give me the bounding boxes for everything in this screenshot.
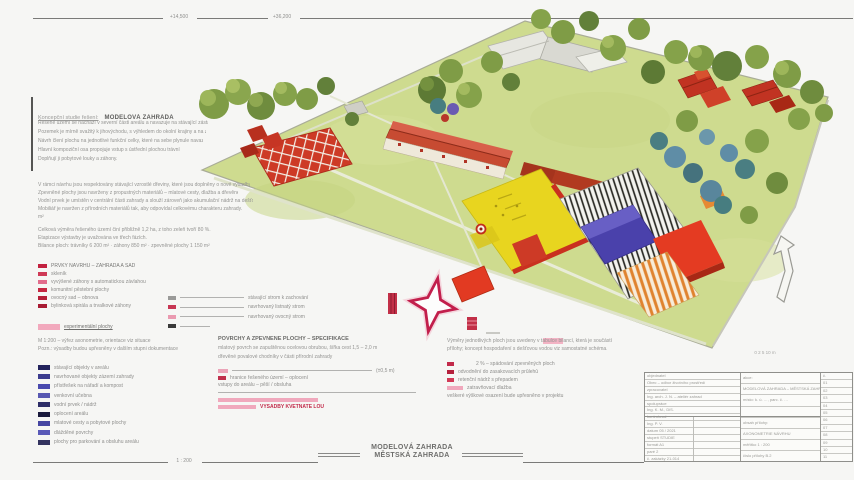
- legend-pink-row: experimentální plochy: [38, 322, 160, 332]
- text-line: Mobiliář je navržen z přírodních materiá…: [38, 205, 243, 213]
- legend-surfaces-lines: mlatový povrch se zapuštěnou ocelovou ob…: [218, 344, 420, 361]
- legend-swatch: [38, 402, 50, 407]
- legend-row: vstupy do areálu – pěší / obsluha: [218, 382, 420, 389]
- legend-label: experimentální plochy: [64, 324, 160, 330]
- titleblock-row: 05: [821, 410, 852, 417]
- legend-label: vodní prvek / nádrž: [54, 402, 142, 408]
- legend-swatch: [168, 324, 176, 328]
- legend-label: dlážděné povrchy: [54, 430, 132, 436]
- text-line: Doplňují ji pobytové louky a záhony.: [38, 155, 156, 164]
- text-line: Vodní prvek je umístěn v centrální části…: [38, 197, 253, 205]
- titleblock-sub-divider: [693, 417, 694, 461]
- text-line: Bilance ploch: trávníky 6 200 m² · záhon…: [38, 242, 253, 250]
- legend-label: přístřešek na nářadí a kompost: [54, 383, 204, 389]
- titleblock-row: spolupráce: [645, 401, 740, 408]
- legend-swatch: [38, 412, 50, 417]
- titleblock-row: 07: [821, 425, 852, 432]
- legend-row: retenční nádrž s přepadem: [447, 376, 612, 384]
- titleblock-major-rule: [645, 416, 820, 417]
- legend-swatch: [447, 386, 463, 390]
- leader-line: [218, 392, 416, 393]
- titleblock-row: AXONOMETRIE NÁVRHU: [741, 429, 820, 440]
- legend-swatch: [38, 421, 50, 426]
- legend-row: hranice řešeného území – oplocení: [218, 374, 420, 381]
- legend-label: navrhovaný ovocný strom: [248, 314, 348, 320]
- legend-swatch: [38, 288, 47, 292]
- titleblock-row: 06: [821, 417, 852, 424]
- titleblock-mid-column: akce:MODELOVÁ ZAHRADA – MĚSTSKÁ ZAHRADAm…: [741, 373, 820, 461]
- legend-notes-block: Výměry jednotlivých ploch jsou uvedeny v…: [447, 337, 612, 400]
- titleblock-row: 11: [821, 454, 852, 461]
- legend-row: experimentální plochy: [38, 322, 160, 332]
- legend-swatch: [218, 398, 318, 402]
- legend-row: přístřešek na nářadí a kompost: [38, 382, 204, 391]
- titleblock-row: 04: [821, 403, 852, 410]
- legend-row: [218, 396, 420, 403]
- legend-row: vyvýšené záhony s automatickou závlahou: [38, 278, 169, 286]
- legend-blue-group: stávající objekty v areálunavrhované obj…: [38, 363, 204, 447]
- titleblock-row: objednatel: [645, 373, 740, 380]
- legend-label: komunitní pěstební plochy: [51, 287, 143, 293]
- legend-row: dlážděné povrchy: [38, 428, 204, 437]
- legend-swatch: [38, 264, 47, 268]
- bottom-border-segment: [523, 462, 644, 463]
- titleblock-row: 09: [821, 440, 852, 447]
- caption-line-1: MODELOVÁ ZAHRADA: [347, 444, 477, 452]
- bottom-scale-label: 1 : 200: [165, 458, 203, 464]
- intro-paragraph-2: V rámci návrhu jsou respektovány stávají…: [38, 181, 253, 221]
- legend-label: navrhovaný listnatý strom: [248, 304, 340, 310]
- legend-label: plochy pro parkování a obsluhu areálu: [54, 439, 196, 445]
- top-border-segment: [33, 18, 163, 19]
- legend-row: plochy pro parkování a obsluhu areálu: [38, 437, 204, 446]
- legend-label: stávající strom k zachování: [248, 295, 354, 301]
- titleblock-row: číslo přílohy B.2: [741, 451, 820, 461]
- legend-row: [218, 389, 420, 396]
- legend-label: ovocný sad – obnova: [51, 295, 113, 301]
- legend-row: stávající objekty v areálu: [38, 363, 204, 372]
- legend-label: mlatové cesty a pobytové plochy: [54, 420, 172, 426]
- legend-label: hranice řešeného území – oplocení: [230, 375, 420, 381]
- text-line: Pozn.: výsadby budou upřesněny v dalším …: [38, 346, 190, 354]
- text-line: m²: [38, 213, 56, 221]
- legend-label: vyvýšené záhony s automatickou závlahou: [51, 279, 169, 285]
- titleblock-divider: [740, 373, 741, 461]
- legend-label: 2 % – spádování zpevněných ploch: [476, 361, 604, 367]
- legend-notes-rows: 2 % – spádování zpevněných plochodvodněn…: [447, 360, 612, 400]
- text-line: Návrh člení plochu na jednotlivé funkční…: [38, 137, 203, 146]
- text-line: dřevěné povalové chodníky v části přírod…: [218, 353, 390, 362]
- legend-label: bylinková spirála a trvalkové záhony: [51, 303, 149, 309]
- legend-swatch: [218, 369, 228, 373]
- legend-row: venkovní učebna: [38, 391, 204, 400]
- legend-label: retenční nádrž s přepadem: [458, 377, 570, 383]
- scale-note: 0 2 5 10 m: [738, 350, 792, 355]
- legend-row: skleník: [38, 270, 169, 278]
- titleblock-revision-column: č.0102030405060708091011: [821, 373, 852, 461]
- text-line: Řešené území se nachází v severní části …: [38, 119, 208, 128]
- intro-paragraph-1: Řešené území se nachází v severní části …: [38, 119, 208, 164]
- bottom-border-segment: [33, 462, 168, 463]
- titleblock: objednatelObec – odbor životního prostře…: [644, 372, 853, 462]
- titleblock-divider: [820, 373, 821, 461]
- titleblock-row: 01: [821, 380, 852, 387]
- text-line: Výměry jednotlivých ploch jsou uvedeny v…: [447, 337, 612, 345]
- legend-row: navrhované objekty zázemí zahrady: [38, 372, 204, 381]
- legend-swatch: [38, 374, 50, 379]
- leader-line: [232, 370, 372, 371]
- legend-trees-group: stávající strom k zachovánínavrhovaný li…: [168, 293, 354, 331]
- legend-label: skleník: [51, 271, 91, 277]
- left-border-tick: [31, 97, 33, 171]
- text-line: mlatový povrch se zapuštěnou ocelovou ob…: [218, 344, 396, 353]
- titleblock-row: 03: [821, 395, 852, 402]
- legend-row: PRVKY NÁVRHU – ZAHRADA A SAD: [38, 262, 169, 270]
- legend-notes-lines: Výměry jednotlivých ploch jsou uvedeny v…: [447, 337, 612, 353]
- titleblock-row: měřítko 1 : 200: [741, 440, 820, 451]
- legend-label: odvodnění do zasakovacích průlehů: [458, 369, 598, 375]
- legend-swatch: [38, 296, 47, 300]
- titleblock-row: Ing. arch. J. N. – ateliér zahrad: [645, 394, 740, 401]
- legend-swatch: [168, 305, 176, 309]
- legend-row: mlatové cesty a pobytové plochy: [38, 419, 204, 428]
- bottom-border-segment: [202, 462, 318, 463]
- legend-label: venkovní učebna: [54, 393, 126, 399]
- leader-line: [180, 326, 210, 327]
- legend-row: bylinková spirála a trvalkové záhony: [38, 302, 169, 310]
- legend-row: veškeré výškové osazení bude upřesněno v…: [447, 392, 612, 400]
- legend-swatch: [447, 362, 454, 366]
- legend-surfaces-heading: POVRCHY A ZPEVNĚNÉ PLOCHY – SPECIFIKACE: [218, 336, 350, 344]
- legend-swatch: [447, 378, 454, 382]
- legend-row: navrhovaný listnatý strom: [168, 303, 354, 313]
- legend-row: vodní prvek / nádrž: [38, 400, 204, 409]
- legend-row: zatravňovací dlažba: [447, 384, 612, 392]
- text-line: Etapizace výstavby je uvažována ve třech…: [38, 234, 184, 242]
- legend-row: oplocení areálu: [38, 409, 204, 418]
- titleblock-row: akce:: [741, 373, 820, 384]
- titleblock-row: 10: [821, 447, 852, 454]
- legend-swatch: [38, 430, 50, 435]
- leader-line: [180, 297, 244, 298]
- legend-row: stávající strom k zachování: [168, 293, 354, 303]
- text-line: M 1:200 – výřez axonometrie, orientace v…: [38, 338, 166, 346]
- legend-swatch: [38, 324, 60, 330]
- sheet-caption: MODELOVÁ ZAHRADA MĚSTSKÁ ZAHRADA: [347, 444, 477, 460]
- legend-swatch: [168, 296, 176, 300]
- caption-line-2: MĚSTSKÁ ZAHRADA: [347, 452, 477, 460]
- legend-row: VÝSADBY KVĚTNATÉ LOUKY: [218, 403, 420, 410]
- legend-label: PRVKY NÁVRHU – ZAHRADA A SAD: [51, 263, 157, 269]
- drawing-sheet: +14,500 +36,200 1 : 200: [0, 0, 854, 480]
- legend-label: VÝSADBY KVĚTNATÉ LOUKY: [260, 404, 324, 410]
- titleblock-row: č.: [821, 373, 852, 380]
- legend-row: navrhovaný ovocný strom: [168, 312, 354, 322]
- text-line: přílohy; koncept hospodaření s dešťovou …: [447, 345, 607, 353]
- legend-swatch: [168, 315, 176, 319]
- legend-label: veškeré výškové osazení bude upřesněno v…: [447, 393, 609, 399]
- legend-swatch: [38, 272, 47, 276]
- titleblock-row: 02: [821, 388, 852, 395]
- legend-note: M 1:200 – výřez axonometrie, orientace v…: [38, 338, 190, 353]
- titleblock-row: 08: [821, 432, 852, 439]
- legend-label: stávající objekty v areálu: [54, 365, 150, 371]
- legend-row: ovocný sad – obnova: [38, 294, 169, 302]
- leader-line: [180, 307, 244, 308]
- titleblock-row: Ing. K. M., DiS.: [645, 407, 740, 414]
- legend-swatch: [38, 365, 50, 370]
- legend-swatch: [38, 393, 50, 398]
- text-line: Zpevněné plochy jsou navrženy z propustn…: [38, 189, 238, 197]
- text-line: Pozemek je mírně svažitý k jihovýchodu, …: [38, 128, 206, 137]
- legend-swatch: [38, 384, 50, 389]
- legend-surfaces-rows: (±0,5 m)hranice řešeného území – oplocen…: [218, 367, 420, 411]
- legend-red-group: PRVKY NÁVRHU – ZAHRADA A SADskleníkvyvýš…: [38, 262, 169, 310]
- legend-swatch: [38, 304, 47, 308]
- leader-line: [180, 316, 244, 317]
- titleblock-row: MODELOVÁ ZAHRADA – MĚSTSKÁ ZAHRADA: [741, 384, 820, 395]
- legend-surfaces-block: POVRCHY A ZPEVNĚNÉ PLOCHY – SPECIFIKACE …: [218, 336, 420, 411]
- titleblock-row: místo: k. ú. …, parc. č. …: [741, 395, 820, 406]
- legend-label: vstupy do areálu – pěší / obsluha: [218, 382, 350, 388]
- legend-swatch: [218, 405, 256, 409]
- text-line: Celková výměra řešeného území činí přibl…: [38, 226, 214, 234]
- titleblock-row: zpracovatel: [645, 387, 740, 394]
- legend-row: [168, 322, 354, 332]
- legend-row: 2 % – spádování zpevněných ploch: [447, 360, 612, 368]
- legend-swatch: [447, 370, 454, 374]
- intro-paragraph-3: Celková výměra řešeného území činí přibl…: [38, 226, 253, 250]
- text-line: V rámci návrhu jsou respektovány stávají…: [38, 181, 250, 189]
- titleblock-row: obsah přílohy:: [741, 418, 820, 429]
- legend-swatch: [38, 440, 50, 445]
- legend-label: (±0,5 m): [376, 368, 412, 374]
- legend-label: zatravňovací dlažba: [467, 385, 557, 391]
- legend-row: odvodnění do zasakovacích průlehů: [447, 368, 612, 376]
- compass-star-icon: [406, 274, 461, 335]
- titleblock-row: Obec – odbor životního prostředí: [645, 380, 740, 387]
- legend-row: komunitní pěstební plochy: [38, 286, 169, 294]
- legend-swatch: [38, 280, 47, 284]
- legend-label: navrhované objekty zázemí zahrady: [54, 374, 186, 380]
- legend-label: oplocení areálu: [54, 411, 124, 417]
- legend-swatch: [218, 376, 226, 380]
- legend-row: (±0,5 m): [218, 367, 420, 374]
- text-line: Hlavní kompoziční osa propojuje vstup s …: [38, 146, 180, 155]
